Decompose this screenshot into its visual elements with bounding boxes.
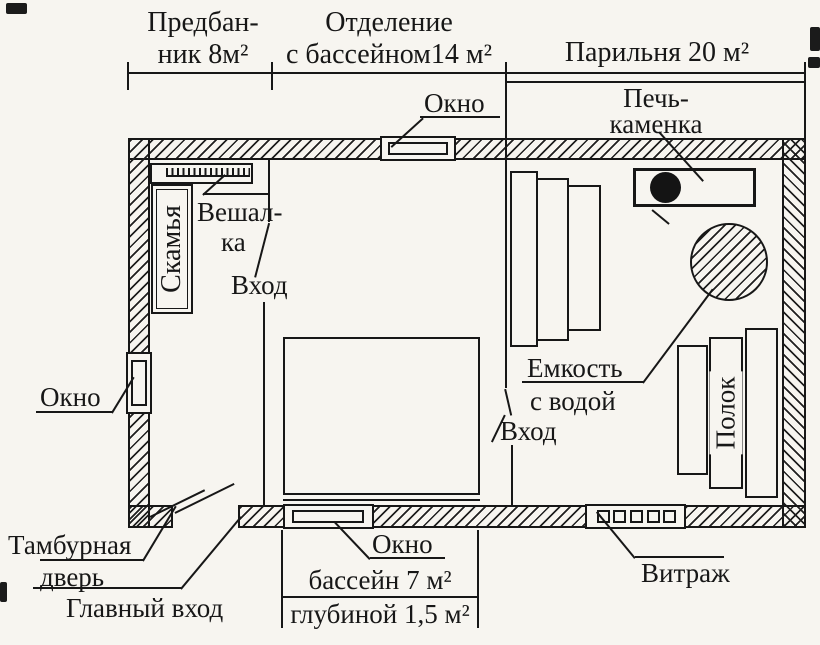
pool-area-label: бассейн 7 м²: [282, 566, 478, 594]
vitrage-pane-4: [647, 510, 660, 523]
vitrage-pane-5: [663, 510, 676, 523]
window-pool-pane: [292, 510, 364, 523]
door-leaf-tambour: [149, 489, 205, 518]
tambour-door-label-line1: Тамбурная: [8, 531, 131, 559]
section-title-otdelenie-line2: с бассейном14 м²: [270, 40, 508, 69]
bathhouse-floor-plan: Предбан- ник 8м² Отделение с бассейном14…: [0, 0, 820, 645]
water-tank-label-line1: Емкость: [527, 354, 623, 382]
polok-label: Полок: [710, 372, 743, 455]
section-title-parilnya: Парильня 20 м²: [508, 38, 806, 67]
window-top-pane: [388, 142, 448, 155]
window-label-top: Окно: [424, 89, 485, 117]
scan-artifact: [6, 3, 27, 14]
pool-dim-divider: [282, 596, 478, 598]
water-tank: [690, 223, 768, 301]
hanger-label-line2: ка: [221, 228, 246, 256]
stove-label-line2: каменка: [506, 110, 806, 138]
partition-parilnya-lower: [511, 445, 513, 507]
polok-step-1: [677, 345, 708, 475]
hanger-label-line1: Вешал-: [197, 198, 282, 226]
steam-step-2: [536, 178, 569, 341]
vitrage-pane-3: [630, 510, 643, 523]
polok-step-3: [745, 328, 778, 498]
scan-artifact: [808, 57, 820, 68]
water-tank-label-line2: с водой: [530, 387, 616, 415]
wall-top: [128, 138, 806, 160]
door-leaf-parilnya: [504, 389, 512, 416]
steam-step-1: [510, 171, 538, 347]
pool-rim-line: [283, 499, 480, 501]
vitrage-label: Витраж: [641, 559, 730, 587]
dimension-line: [128, 72, 806, 74]
stove-hatch-notch: [651, 209, 669, 225]
tambour-door-label-line2: дверь: [40, 563, 104, 591]
vitrage-pane-2: [613, 510, 626, 523]
hanger-leader-horizontal: [203, 193, 268, 195]
scan-artifact: [0, 582, 7, 602]
window-left-pane: [131, 360, 147, 406]
entrance-label-parilnya: Вход: [500, 417, 557, 445]
scan-artifact: [810, 27, 820, 51]
window-label-pool: Окно: [372, 530, 433, 558]
section-title-otdelenie-line1: Отделение: [270, 8, 508, 37]
main-entrance-label: Главный вход: [66, 594, 223, 622]
partition-predbannik-lower: [263, 302, 265, 507]
stove-burner-icon: [650, 172, 681, 203]
pool: [283, 337, 480, 495]
wall-right: [782, 138, 806, 528]
hanger-hooks-icon: [166, 168, 250, 177]
window-label-left: Окно: [40, 383, 101, 411]
wall-left: [128, 138, 150, 528]
pool-depth-label: глубиной 1,5 м²: [277, 600, 483, 628]
bench-label: Скамья: [156, 205, 188, 293]
section-title-predbannik-line2: ник 8м²: [128, 40, 278, 69]
section-title-predbannik-line1: Предбан-: [128, 8, 278, 37]
entrance-label-predbannik: Вход: [231, 271, 288, 299]
hanger-shelf: [150, 163, 253, 184]
main-entrance-leader: [180, 516, 242, 589]
steam-step-3: [567, 185, 601, 331]
